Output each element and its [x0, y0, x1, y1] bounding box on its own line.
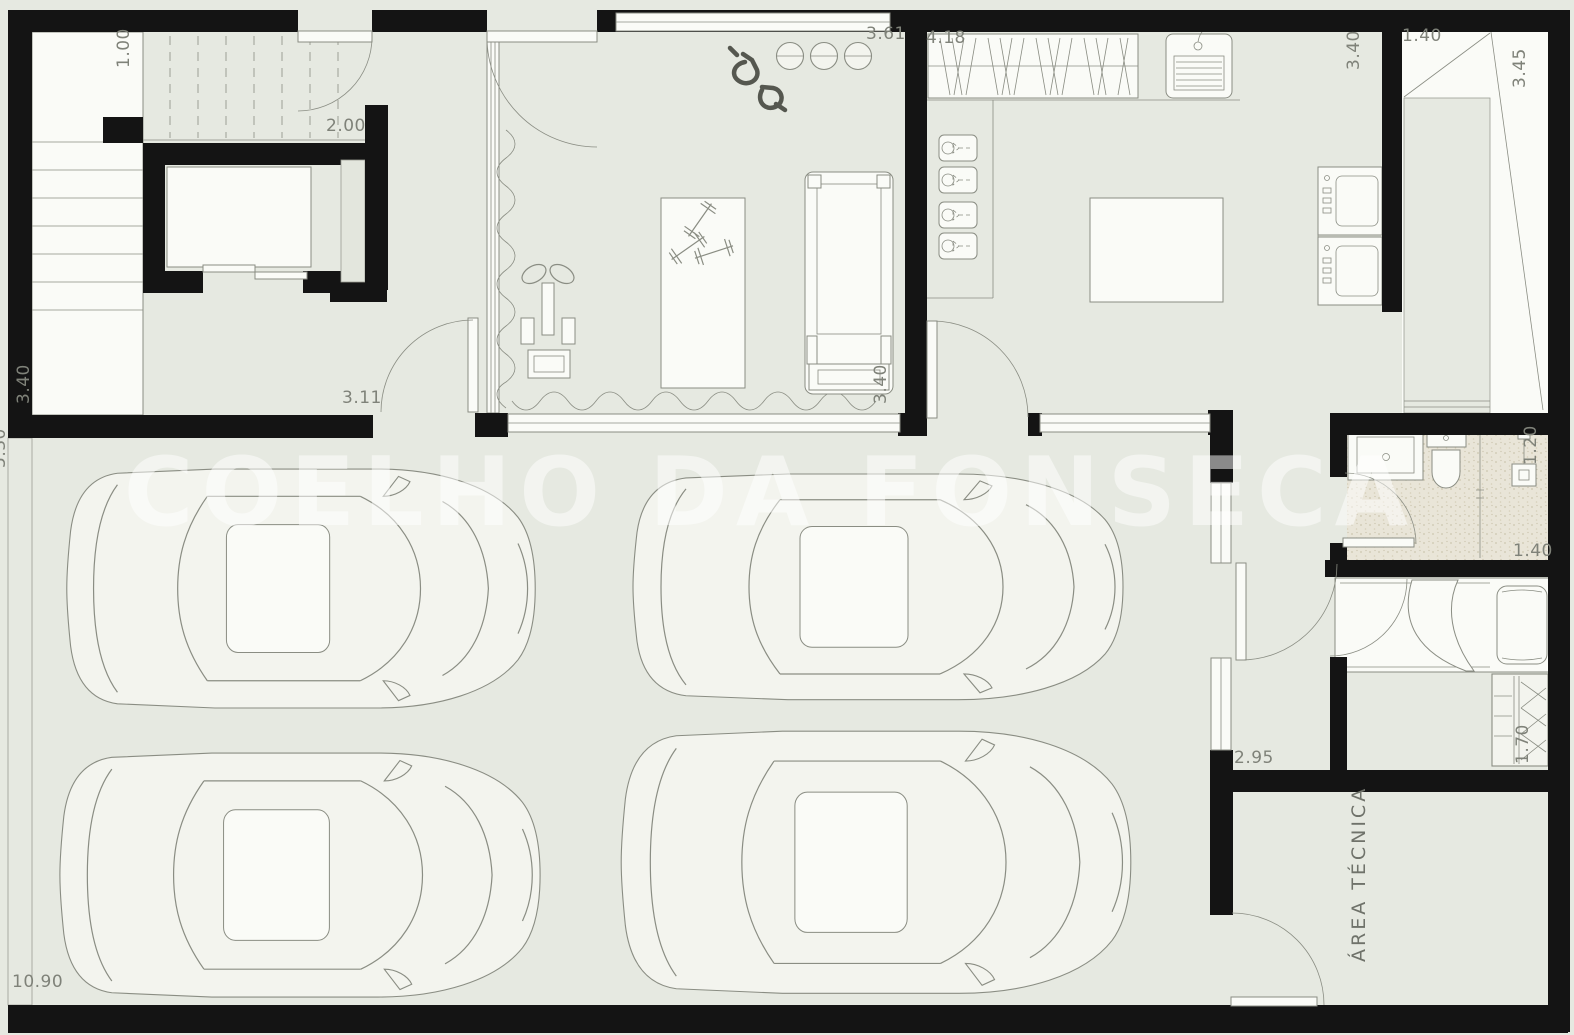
bathroom-sink	[1348, 430, 1423, 480]
cleaning-brushes	[939, 135, 977, 259]
exercise-bike	[519, 261, 578, 378]
car-3	[60, 753, 540, 997]
dim-garage-width: 10.90	[12, 972, 63, 992]
dim-gym-width: 3.61	[866, 24, 906, 44]
dim-stairs-depth: 3.40	[14, 364, 34, 404]
dim-hall-width: 2.00	[326, 116, 366, 136]
dim-laundry-width: 4.18	[926, 28, 966, 48]
stacked-appliance-1	[1318, 167, 1382, 235]
car-2	[633, 474, 1123, 700]
dumbbell-rack	[661, 198, 745, 388]
gym-glass-partition	[487, 32, 499, 413]
dim-garage-left-depth: 5.30	[0, 428, 10, 468]
pillow	[1497, 586, 1547, 664]
dim-shaft-depth: 3.45	[1510, 48, 1530, 88]
treadmill	[805, 172, 893, 394]
exercise-balls	[777, 43, 872, 70]
floor-plan: 1.00 2.00 3.61 4.18 3.40 1.40 3.45 3.40 …	[0, 0, 1574, 1035]
gym-curtain-left	[497, 130, 515, 408]
ramp-shaft	[1402, 32, 1548, 413]
car-1	[67, 469, 535, 708]
technical-area-label: ÁREA TÉCNICA	[1348, 786, 1370, 962]
car-4	[621, 731, 1131, 993]
kitchen-island	[1090, 198, 1223, 302]
dim-shaft-width: 1.40	[1402, 26, 1442, 46]
dim-corridor-length: 2.95	[1234, 748, 1274, 768]
dim-vestibule-width: 3.11	[342, 388, 382, 408]
dim-bathroom-width: 1.40	[1513, 541, 1553, 561]
dim-gym-depth: 3.40	[871, 364, 891, 404]
dim-laundry-depth: 3.40	[1344, 30, 1364, 70]
left-margin-strip	[8, 438, 32, 1005]
staircase	[32, 32, 143, 415]
laundry-sink	[1166, 28, 1232, 98]
elevator	[103, 117, 387, 293]
dim-wardrobe-width: 1.70	[1513, 724, 1533, 764]
gym-curtain-bottom	[512, 392, 876, 410]
stacked-appliance-2	[1318, 237, 1382, 305]
floorplan-drawing	[0, 0, 1574, 1035]
dim-hall-ramp-width: 1.00	[114, 28, 134, 68]
dim-bathroom-depth: 1.20	[1521, 425, 1541, 465]
bed	[1335, 578, 1550, 672]
